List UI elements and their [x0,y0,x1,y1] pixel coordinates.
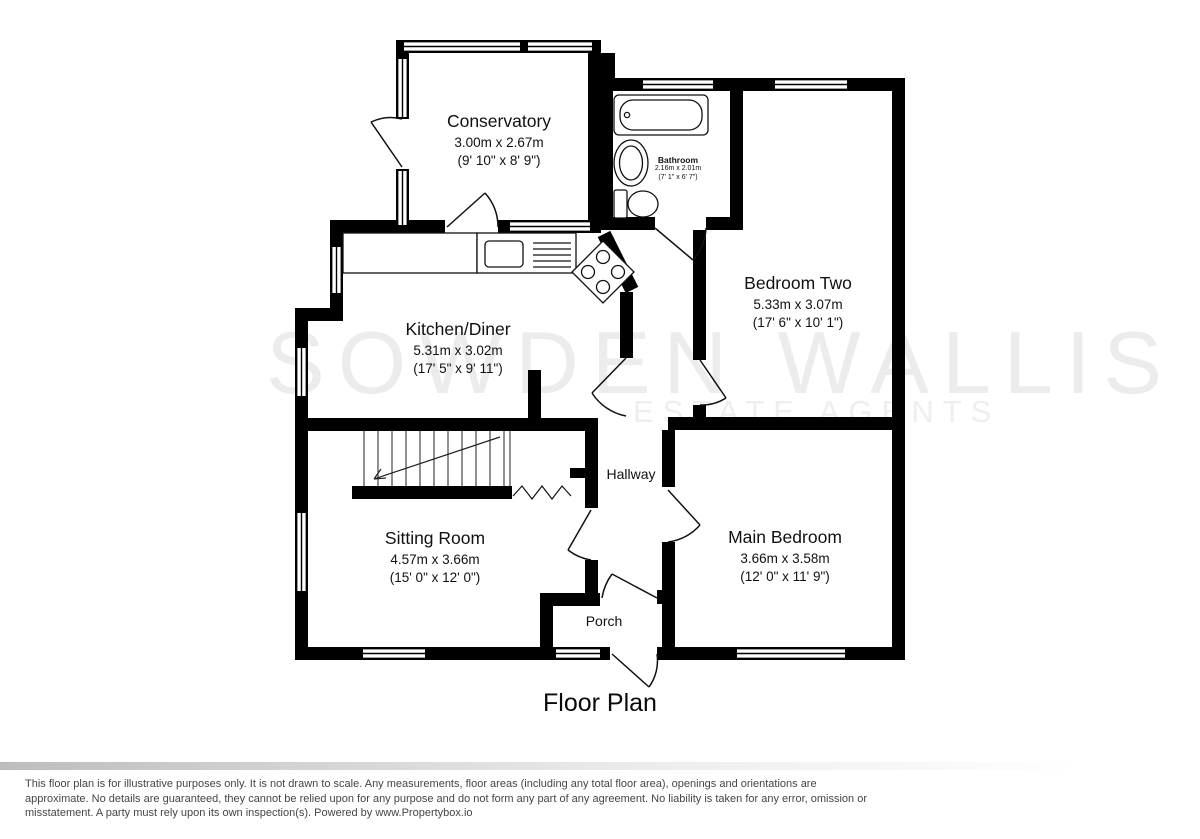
window [363,648,425,659]
door-arc [602,574,657,598]
floor-plan-drawing [0,0,1200,760]
room-dim-imperial: (7' 1" x 6' 7") [636,174,720,182]
room-dim-metric: 5.33m x 3.07m [698,296,898,314]
room-label-kitchen-diner: Kitchen/Diner 5.31m x 3.02m (17' 5" x 9'… [358,318,558,378]
room-dim-imperial: (9' 10" x 8' 9") [399,152,599,170]
door-arc [447,193,498,227]
window [510,221,590,232]
window [331,247,342,293]
footer-divider [0,762,1200,770]
room-name: Porch [554,612,654,631]
page-title: Floor Plan [295,689,905,718]
room-dim-metric: 3.00m x 2.67m [399,134,599,152]
room-dim-imperial: (15' 0" x 12' 0") [335,569,535,587]
room-name: Bedroom Two [698,272,898,296]
room-label-sitting-room: Sitting Room 4.57m x 3.66m (15' 0" x 12'… [335,527,535,587]
door-arc [592,358,626,416]
room-name: Bathroom [636,155,720,165]
window [296,348,307,396]
floor-plan-page: SOWDEN WALLIS ESTATE AGENTS [0,0,1200,839]
room-label-conservatory: Conservatory 3.00m x 2.67m (9' 10" x 8' … [399,110,599,170]
room-dim-imperial: (12' 0" x 11' 9") [685,568,885,586]
room-label-bathroom: Bathroom 2.16m x 2.01m (7' 1" x 6' 7") [636,155,720,182]
opening-squiggle [513,486,571,499]
window [775,79,847,90]
door-arc [568,510,591,560]
window [296,513,307,591]
door-arc [700,360,726,405]
room-name: Kitchen/Diner [358,318,558,342]
disclaimer-line: misstatement. A party must rely upon its… [25,806,867,821]
room-dim-imperial: (17' 6" x 10' 1") [698,314,898,332]
window [556,648,600,659]
window [404,41,520,52]
room-label-hallway: Hallway [581,465,681,484]
disclaimer-line: This floor plan is for illustrative purp… [25,777,867,792]
kitchen-sink-icon [477,233,576,273]
bathtub-icon [614,95,708,135]
room-name: Main Bedroom [685,526,885,550]
room-label-bedroom-two: Bedroom Two 5.33m x 3.07m (17' 6" x 10' … [698,272,898,332]
room-name: Conservatory [399,110,599,134]
kitchen-counter [343,233,477,273]
room-name: Sitting Room [335,527,535,551]
room-dim-metric: 2.16m x 2.01m [636,165,720,173]
window [397,171,408,225]
room-dim-metric: 4.57m x 3.66m [335,551,535,569]
stairs-icon [364,431,510,486]
window [397,59,408,117]
disclaimer-text: This floor plan is for illustrative purp… [25,777,867,821]
toilet-icon [614,190,658,218]
room-dim-metric: 3.66m x 3.58m [685,550,885,568]
room-dim-imperial: (17' 5" x 9' 11") [358,360,558,378]
room-label-porch: Porch [554,612,654,631]
room-name: Hallway [581,465,681,484]
disclaimer-line: approximate. No details are guaranteed, … [25,792,867,807]
window [528,41,592,52]
window [643,79,713,90]
room-dim-metric: 5.31m x 3.02m [358,342,558,360]
window [737,648,845,659]
room-label-main-bedroom: Main Bedroom 3.66m x 3.58m (12' 0" x 11'… [685,526,885,586]
